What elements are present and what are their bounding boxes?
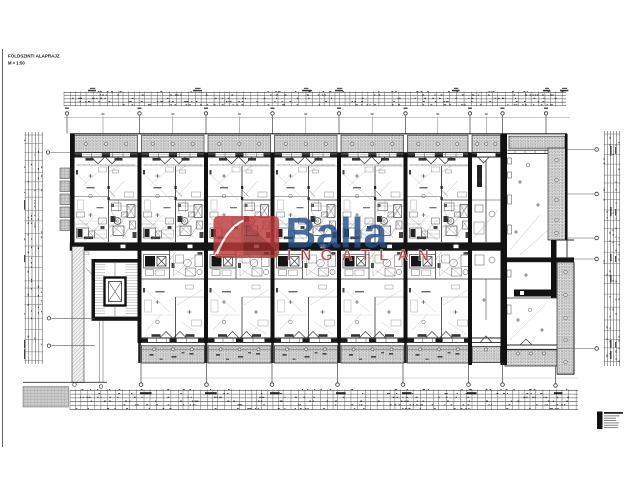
svg-text:INGATLAN: INGATLAN — [287, 248, 438, 265]
svg-text:FÖLDSZINTI ALAPRAJZ: FÖLDSZINTI ALAPRAJZ — [8, 53, 60, 59]
svg-text:M = 1:50: M = 1:50 — [8, 61, 25, 66]
